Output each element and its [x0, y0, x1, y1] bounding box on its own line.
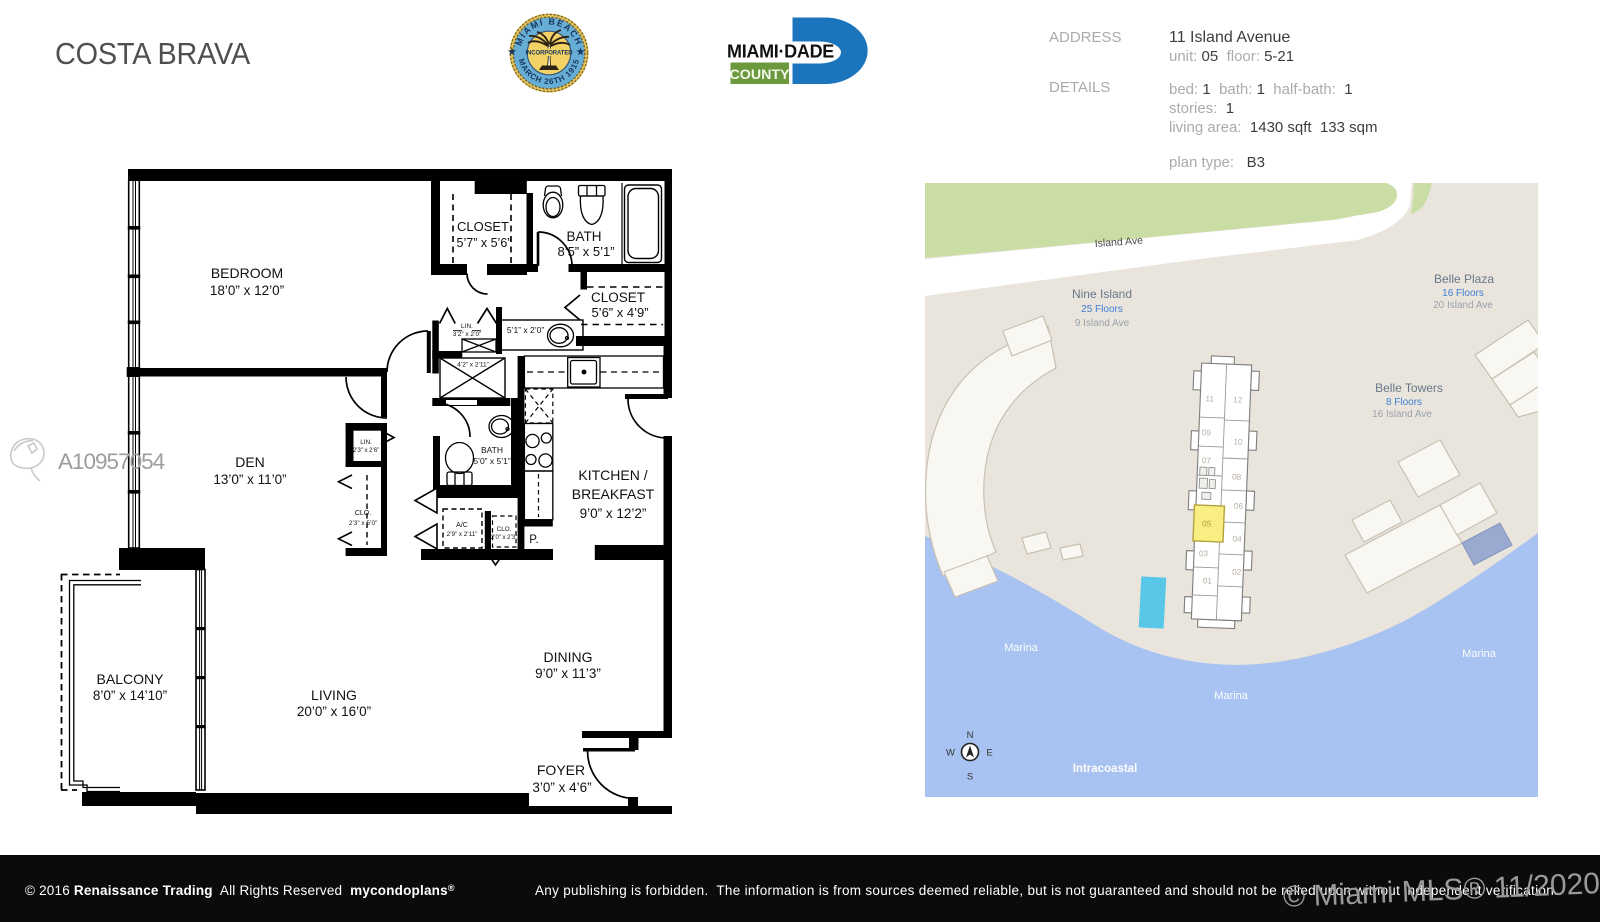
svg-text:3’2” x 2’0”: 3’2” x 2’0”: [453, 331, 482, 338]
svg-text:Marina: Marina: [1004, 642, 1039, 654]
svg-text:11: 11: [1205, 394, 1214, 403]
svg-text:2’0” x 2’3”: 2’0” x 2’3”: [491, 535, 517, 541]
svg-text:08: 08: [1232, 472, 1242, 481]
svg-text:8 Floors: 8 Floors: [1386, 397, 1422, 408]
svg-text:BALCONY: BALCONY: [97, 671, 165, 687]
svg-text:LIVING: LIVING: [311, 687, 357, 703]
svg-text:P.: P.: [529, 534, 538, 546]
svg-text:BEDROOM: BEDROOM: [211, 265, 283, 281]
svg-text:Marina: Marina: [1462, 648, 1497, 660]
svg-text:CLOSET: CLOSET: [591, 290, 645, 305]
svg-text:18’0” x 12’0”: 18’0” x 12’0”: [210, 283, 284, 298]
svg-text:S: S: [967, 772, 973, 783]
svg-text:12: 12: [1233, 395, 1243, 404]
svg-text:BREAKFAST: BREAKFAST: [572, 486, 655, 502]
svg-text:MIAMI·DADE: MIAMI·DADE: [727, 42, 834, 62]
svg-text:KITCHEN /: KITCHEN /: [578, 467, 647, 483]
svg-text:5’7” x 5’6”: 5’7” x 5’6”: [457, 236, 512, 250]
svg-text:10: 10: [1233, 437, 1243, 446]
svg-text:Belle Plaza: Belle Plaza: [1434, 272, 1494, 286]
svg-text:20 Island Ave: 20 Island Ave: [1433, 300, 1493, 311]
svg-text:02: 02: [1232, 567, 1242, 576]
svg-text:Nine Island: Nine Island: [1072, 287, 1132, 301]
svg-text:04: 04: [1232, 534, 1242, 543]
svg-text:CLO.: CLO.: [497, 526, 512, 533]
svg-text:2’9” x 2’11”: 2’9” x 2’11”: [447, 531, 478, 538]
svg-text:16 Floors: 16 Floors: [1442, 288, 1484, 299]
svg-text:LIN.: LIN.: [360, 439, 372, 446]
svg-text:05: 05: [1202, 519, 1212, 528]
svg-text:03: 03: [1199, 549, 1209, 558]
svg-text:5’6” x 4’9”: 5’6” x 4’9”: [591, 305, 648, 320]
svg-text:DINING: DINING: [544, 649, 593, 665]
svg-text:01: 01: [1203, 576, 1213, 585]
svg-text:E: E: [986, 748, 992, 759]
svg-text:5’0” x 5’1”: 5’0” x 5’1”: [473, 456, 510, 466]
svg-text:13’0” x 11’0”: 13’0” x 11’0”: [213, 472, 286, 487]
svg-text:09: 09: [1202, 428, 1212, 437]
svg-text:N: N: [967, 730, 974, 741]
svg-text:9’0” x 12’2”: 9’0” x 12’2”: [580, 506, 647, 521]
svg-text:9’0” x 11’3”: 9’0” x 11’3”: [535, 666, 601, 681]
svg-text:4’2” x 2’11”: 4’2” x 2’11”: [457, 362, 489, 369]
svg-text:INCORPORATED: INCORPORATED: [525, 51, 573, 57]
svg-text:5’1” x 2’0”: 5’1” x 2’0”: [507, 325, 544, 335]
svg-text:COUNTY: COUNTY: [730, 67, 790, 83]
svg-text:06: 06: [1234, 501, 1244, 510]
svg-text:W: W: [946, 748, 955, 759]
svg-text:Belle Towers: Belle Towers: [1375, 381, 1443, 395]
svg-text:BATH: BATH: [566, 229, 601, 244]
svg-text:2’3” x 2’6”: 2’3” x 2’6”: [353, 448, 379, 454]
svg-text:FOYER: FOYER: [537, 762, 585, 778]
svg-text:CLO.: CLO.: [355, 510, 371, 517]
svg-text:20’0” x 16’0”: 20’0” x 16’0”: [297, 704, 371, 719]
svg-text:DEN: DEN: [235, 454, 265, 470]
svg-text:9 Island Ave: 9 Island Ave: [1075, 318, 1130, 329]
svg-text:Marina: Marina: [1214, 690, 1249, 702]
svg-text:25 Floors: 25 Floors: [1081, 304, 1123, 315]
svg-text:16 Island Ave: 16 Island Ave: [1372, 409, 1432, 420]
svg-text:Intracoastal: Intracoastal: [1073, 763, 1138, 775]
svg-text:BATH: BATH: [481, 445, 503, 455]
svg-text:CLOSET: CLOSET: [457, 219, 509, 234]
svg-text:LIN.: LIN.: [461, 323, 473, 330]
svg-text:A/C: A/C: [456, 522, 468, 529]
svg-text:07: 07: [1202, 456, 1212, 465]
svg-text:3’0” x 4’6”: 3’0” x 4’6”: [532, 780, 591, 795]
svg-text:2’3” x 5’0”: 2’3” x 5’0”: [349, 520, 378, 527]
svg-text:8’0” x 14’10”: 8’0” x 14’10”: [93, 688, 167, 703]
